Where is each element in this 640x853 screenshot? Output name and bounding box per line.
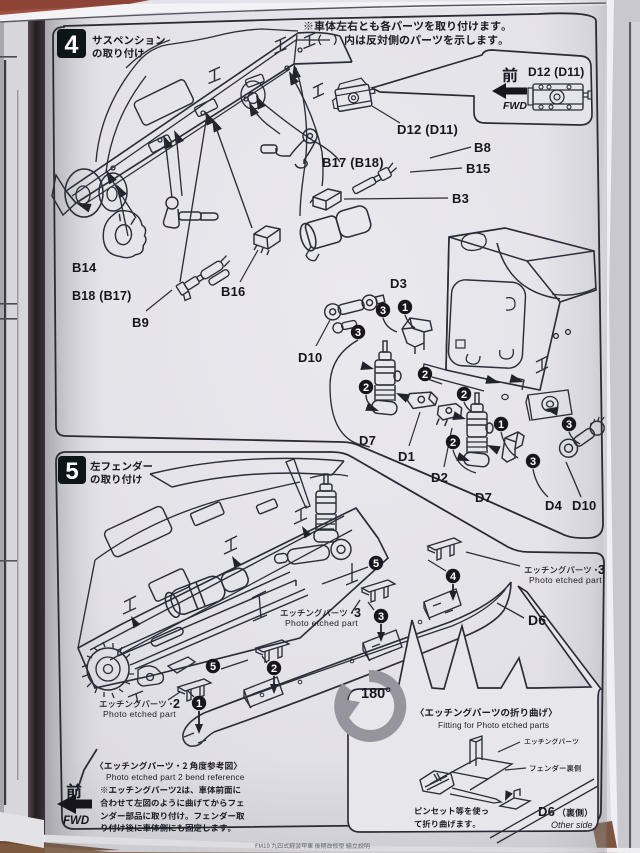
svg-text:D1: D1 [398,449,415,464]
svg-text:2: 2 [363,382,369,394]
svg-text:FWD: FWD [63,815,89,827]
svg-text:B8: B8 [474,140,491,155]
svg-text:Photo etched part 2 bend refer: Photo etched part 2 bend reference [106,772,245,782]
svg-text:B3: B3 [452,191,469,206]
svg-text:B14: B14 [72,260,97,275]
svg-text:D6: D6 [528,612,546,628]
svg-text:1: 1 [498,419,504,431]
svg-text:B17 (B18): B17 (B18) [322,155,384,170]
svg-text:D12 (D11): D12 (D11) [528,65,585,79]
svg-text:D3: D3 [390,276,407,291]
svg-text:3: 3 [378,611,384,623]
svg-text:B18 (B17): B18 (B17) [72,289,131,303]
svg-text:2: 2 [450,437,456,449]
svg-text:Fitting for Photo etched parts: Fitting for Photo etched parts [438,721,549,730]
svg-text:1: 1 [402,302,408,314]
svg-text:D2: D2 [431,470,448,485]
svg-text:3: 3 [530,456,536,468]
svg-text:Other side: Other side [551,820,593,830]
svg-text:3: 3 [380,305,386,317]
svg-text:B15: B15 [466,161,490,176]
svg-text:2: 2 [271,663,277,675]
svg-text:1: 1 [196,698,202,710]
svg-text:2: 2 [422,369,428,381]
svg-text:D12 (D11): D12 (D11) [397,122,458,137]
svg-text:4: 4 [450,571,457,583]
svg-text:2: 2 [461,389,467,401]
svg-text:4: 4 [65,31,79,59]
svg-text:D4: D4 [545,498,563,513]
svg-text:3: 3 [566,419,572,431]
svg-text:5: 5 [373,558,379,570]
svg-text:Photo etched part: Photo etched part [285,618,358,628]
svg-text:D10: D10 [298,350,322,365]
svg-text:180°: 180° [361,686,391,702]
svg-text:D10: D10 [572,498,596,513]
svg-text:B9: B9 [132,315,149,330]
svg-text:3: 3 [355,327,361,339]
svg-text:Photo etched part: Photo etched part [103,709,176,719]
svg-text:D7: D7 [475,490,492,505]
svg-text:FWD: FWD [503,100,527,112]
svg-text:5: 5 [210,661,216,673]
svg-text:Photo etched part: Photo etched part [529,575,602,585]
svg-text:B16: B16 [221,284,245,299]
svg-text:5: 5 [65,458,78,485]
